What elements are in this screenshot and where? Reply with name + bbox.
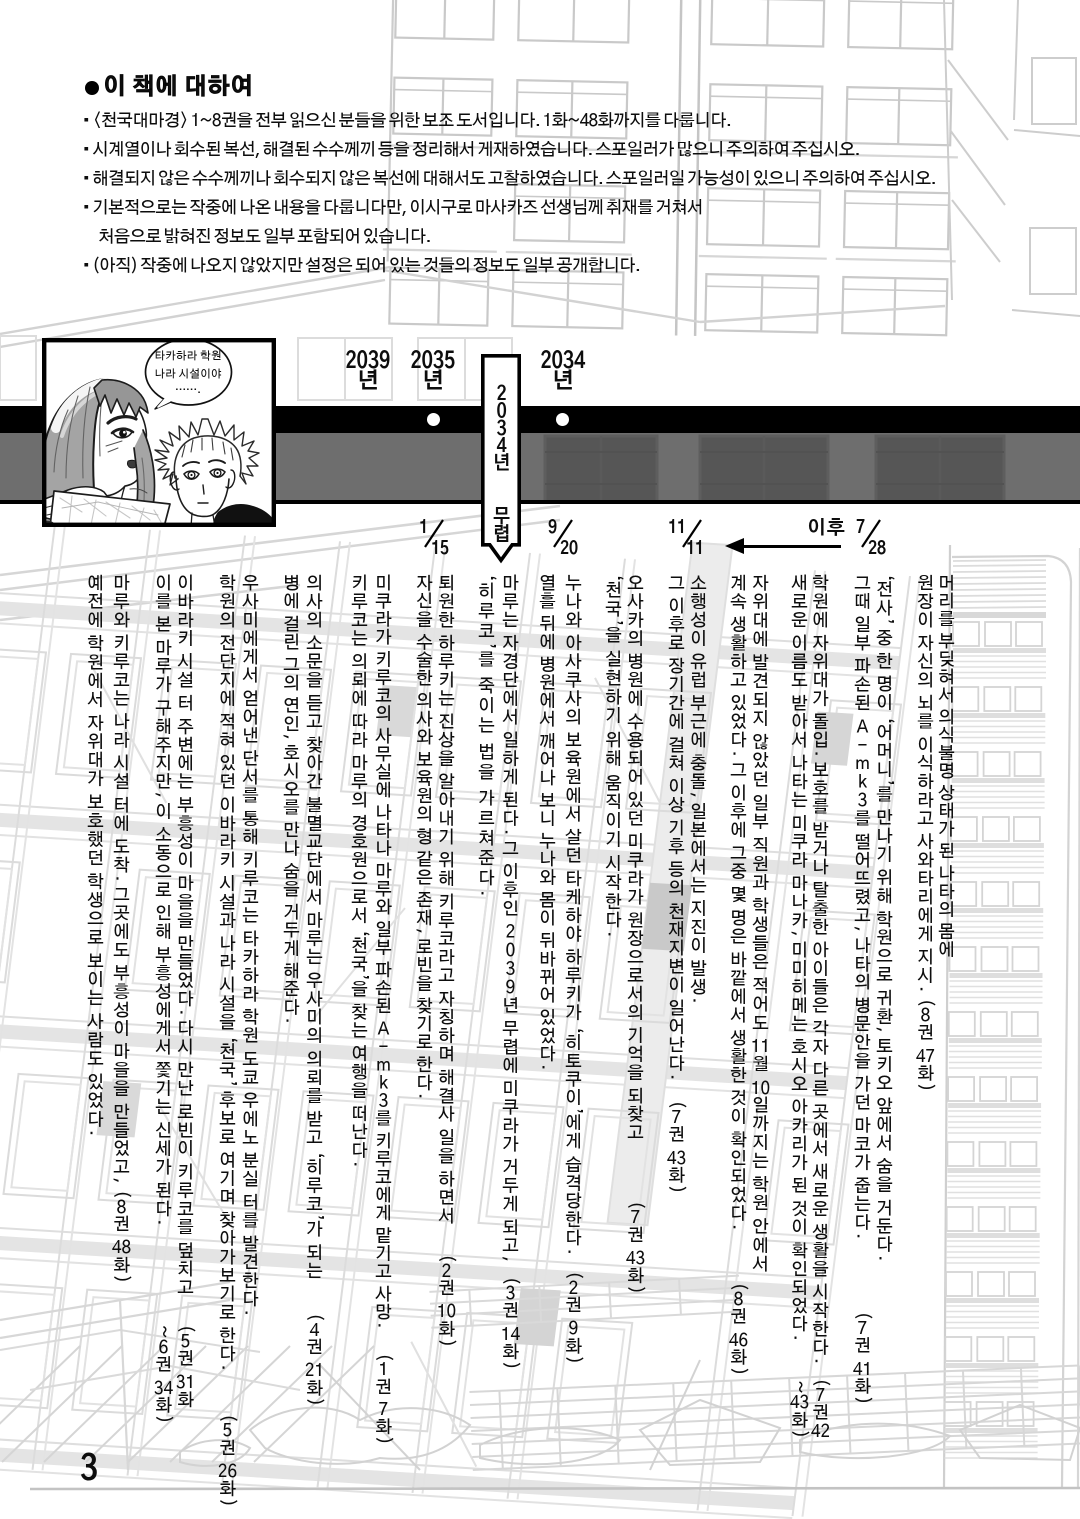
svg-text:타카하라 학원: 타카하라 학원 — [154, 350, 221, 363]
svg-text:…….: ……. — [175, 385, 201, 396]
svg-text:나라 시설이야: 나라 시설이야 — [154, 368, 222, 381]
